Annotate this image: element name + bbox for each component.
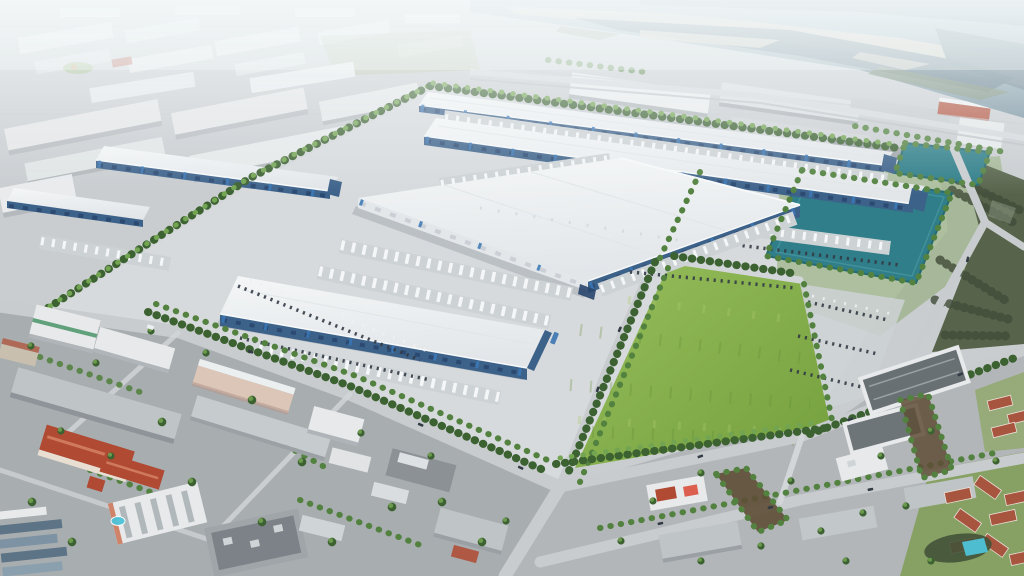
hotel-pool xyxy=(111,517,125,526)
aerial-scene-svg xyxy=(0,0,1024,576)
aerial-photo xyxy=(0,0,1024,576)
horizon-haze xyxy=(0,0,1024,70)
